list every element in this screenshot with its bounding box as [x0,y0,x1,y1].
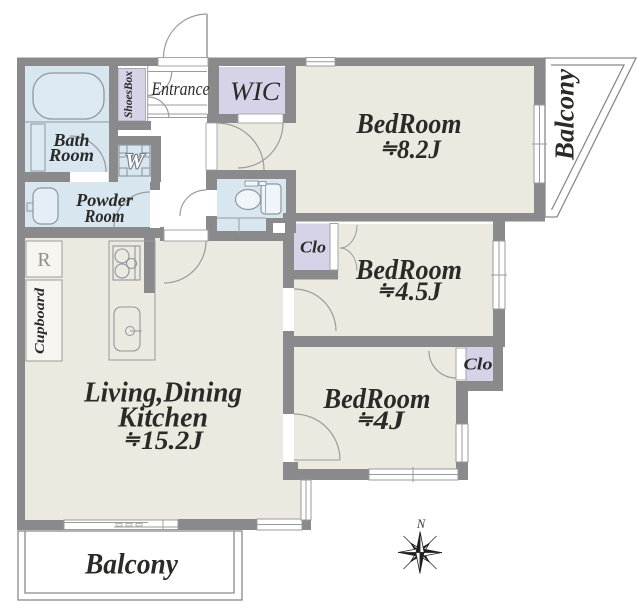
svg-text:Balcony: Balcony [550,68,580,161]
svg-text:Clo: Clo [464,355,493,374]
svg-text:Balcony: Balcony [84,548,179,581]
svg-text:Room: Room [48,145,94,165]
svg-text:N: N [416,517,426,531]
svg-text:R: R [37,249,51,271]
svg-text:Entrance: Entrance [151,80,210,100]
svg-text:Clo: Clo [300,238,326,257]
svg-text:8.2J: 8.2J [397,134,442,164]
svg-text:W: W [125,149,145,173]
svg-text:15.2J: 15.2J [141,425,204,455]
svg-text:Room: Room [84,206,125,226]
svg-text:WIC: WIC [230,77,281,106]
svg-text:ShoesBox: ShoesBox [121,71,135,118]
svg-text:Cupboard: Cupboard [32,288,47,354]
svg-text:4.5J: 4.5J [395,276,443,306]
svg-text:4J: 4J [372,405,405,435]
